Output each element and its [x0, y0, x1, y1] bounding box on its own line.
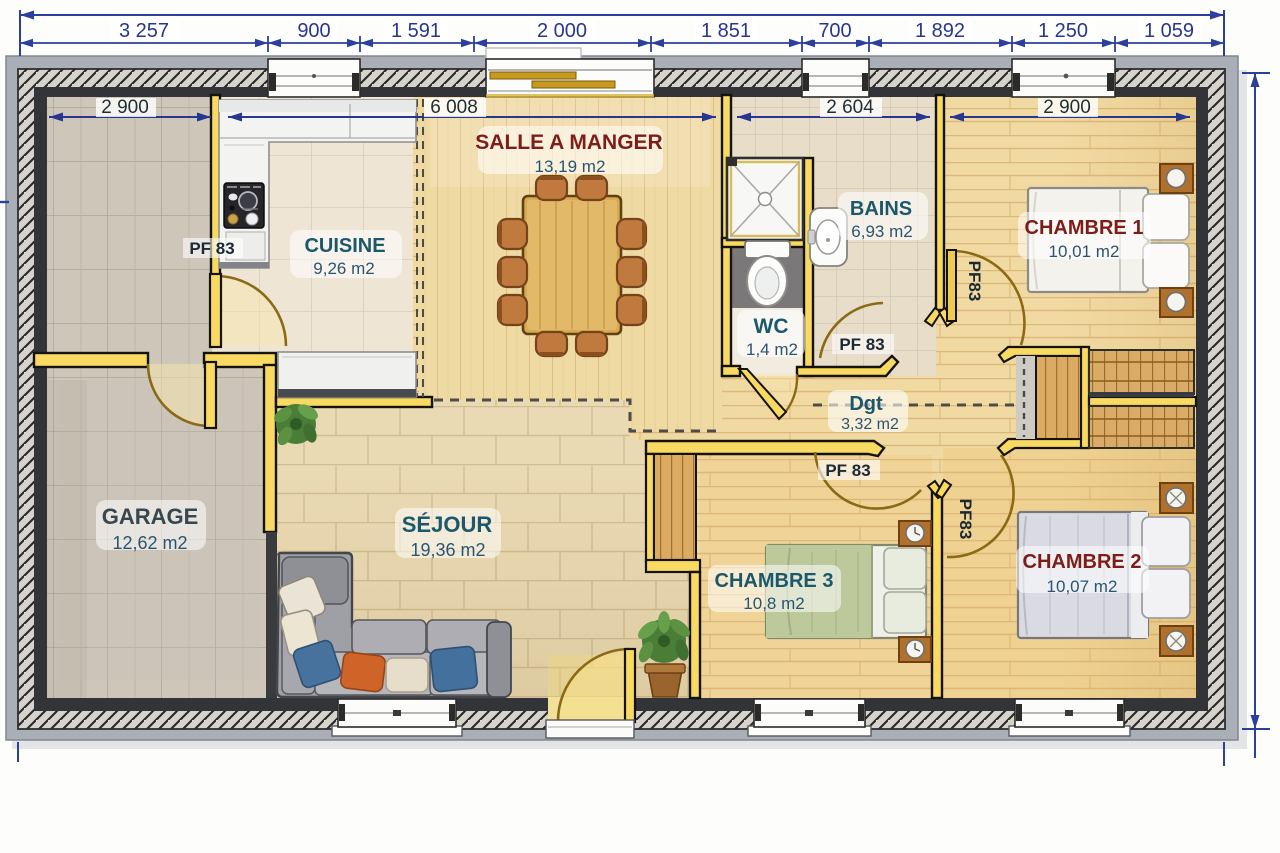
- svg-text:6 008: 6 008: [430, 97, 478, 118]
- svg-text:GARAGE: GARAGE: [102, 504, 199, 529]
- svg-text:10,01 m2: 10,01 m2: [1049, 242, 1120, 261]
- svg-text:PF 83: PF 83: [825, 461, 870, 480]
- svg-text:CHAMBRE 2: CHAMBRE 2: [1023, 551, 1142, 573]
- svg-text:12,62 m2: 12,62 m2: [112, 533, 187, 553]
- svg-text:SALLE A MANGER: SALLE A MANGER: [475, 131, 662, 154]
- svg-text:1 059: 1 059: [1144, 20, 1194, 42]
- svg-text:2 900: 2 900: [101, 97, 149, 118]
- svg-text:700: 700: [818, 20, 851, 42]
- svg-text:1 892: 1 892: [915, 20, 965, 42]
- svg-text:10,07 m2: 10,07 m2: [1047, 577, 1118, 596]
- svg-text:1 851: 1 851: [701, 20, 751, 42]
- svg-text:PF83: PF83: [956, 499, 975, 540]
- svg-text:3 257: 3 257: [119, 20, 169, 42]
- svg-text:BAINS: BAINS: [850, 198, 912, 220]
- svg-text:CHAMBRE 3: CHAMBRE 3: [715, 570, 834, 592]
- svg-text:2 604: 2 604: [826, 97, 874, 118]
- svg-text:2 000: 2 000: [537, 20, 587, 42]
- svg-text:10,8 m2: 10,8 m2: [743, 594, 804, 613]
- svg-text:19,36 m2: 19,36 m2: [410, 540, 485, 560]
- svg-text:2 900: 2 900: [1043, 97, 1091, 118]
- svg-text:WC: WC: [754, 315, 789, 338]
- svg-text:6,93 m2: 6,93 m2: [851, 222, 912, 241]
- svg-text:1 591: 1 591: [391, 20, 441, 42]
- svg-text:1 250: 1 250: [1038, 20, 1088, 42]
- svg-text:SÉJOUR: SÉJOUR: [402, 512, 493, 537]
- svg-text:13,19 m2: 13,19 m2: [535, 157, 606, 176]
- svg-text:CHAMBRE 1: CHAMBRE 1: [1025, 217, 1144, 239]
- svg-text:Dgt: Dgt: [849, 393, 883, 415]
- svg-text:PF 83: PF 83: [189, 239, 234, 258]
- svg-text:900: 900: [297, 20, 330, 42]
- svg-text:1,4 m2: 1,4 m2: [746, 340, 798, 359]
- svg-text:PF 83: PF 83: [839, 335, 884, 354]
- svg-text:CUISINE: CUISINE: [304, 235, 385, 257]
- svg-text:PF83: PF83: [965, 261, 984, 302]
- svg-text:3,32 m2: 3,32 m2: [841, 416, 899, 433]
- svg-text:9,26 m2: 9,26 m2: [313, 259, 374, 278]
